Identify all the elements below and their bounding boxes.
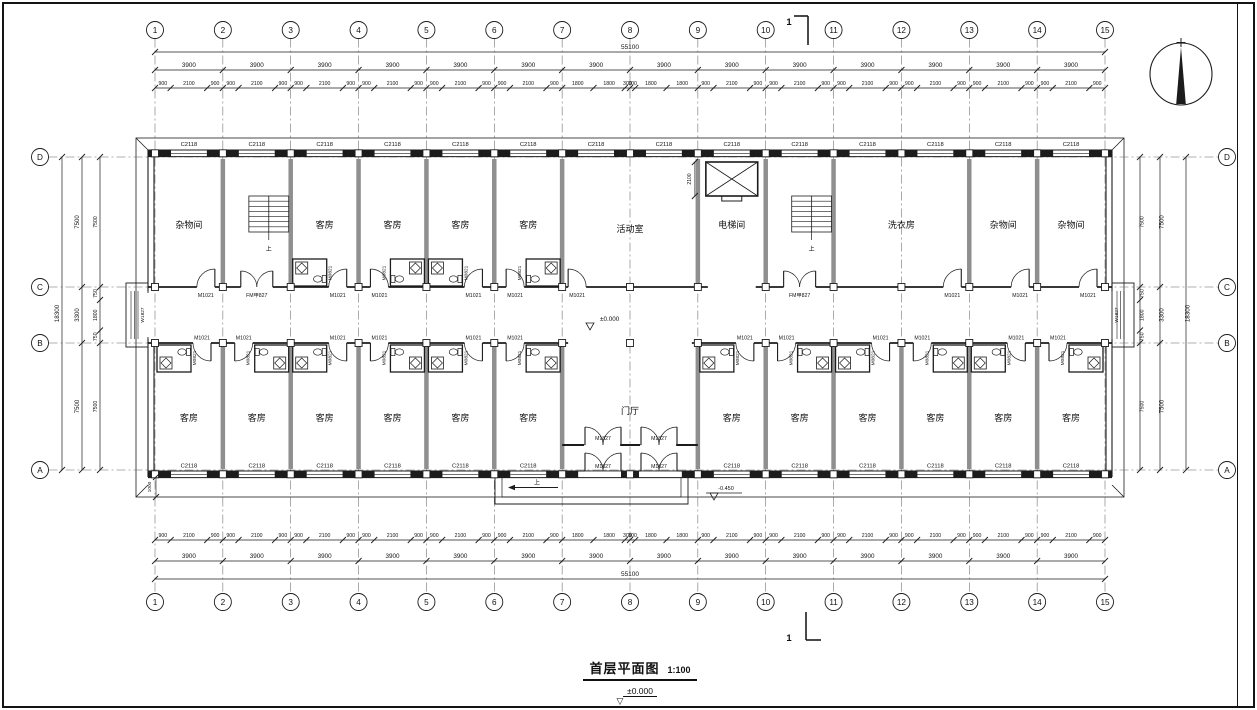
column bbox=[898, 284, 905, 291]
column bbox=[355, 340, 362, 347]
toilet-tank bbox=[798, 349, 802, 356]
dim-text: 3900 bbox=[793, 553, 808, 560]
column bbox=[559, 150, 566, 157]
dim-text: 900 bbox=[1025, 533, 1034, 539]
window-tag: C2118 bbox=[859, 464, 876, 470]
grid-bubble-label: A bbox=[37, 466, 43, 475]
toilet-icon bbox=[314, 276, 322, 282]
window-tag: C2118 bbox=[723, 464, 740, 470]
room-label: 客房 bbox=[383, 219, 401, 230]
toilet-tank bbox=[391, 349, 395, 356]
dim-text: 900 bbox=[769, 533, 778, 539]
column bbox=[762, 471, 769, 478]
dim-text: 7500 bbox=[93, 216, 99, 228]
dim-text: 3300 bbox=[1160, 308, 1166, 322]
room-door-tag: M1021 bbox=[198, 293, 214, 299]
column bbox=[287, 284, 294, 291]
room-door-tag: M1021 bbox=[194, 336, 210, 342]
grid-bubble-label: B bbox=[37, 339, 43, 348]
column bbox=[1101, 150, 1108, 157]
dim-text: 900 bbox=[482, 81, 491, 87]
shower-icon bbox=[432, 358, 442, 368]
shower-tray bbox=[431, 262, 443, 274]
dim-text: 900 bbox=[294, 81, 303, 87]
room-label: 客房 bbox=[858, 412, 876, 423]
drawing-scale: 1:100 bbox=[667, 665, 690, 675]
dim-text: 750 bbox=[93, 289, 99, 298]
shower-tray bbox=[409, 357, 421, 369]
room-label: 杂物间 bbox=[175, 219, 202, 230]
room-label: 客房 bbox=[519, 219, 537, 230]
end-window-tag: W1827 bbox=[140, 307, 146, 323]
shower-tray bbox=[296, 262, 308, 274]
bath-door-tag: M0821 bbox=[517, 350, 523, 365]
window-tag: C2118 bbox=[927, 464, 944, 470]
dim-text: 3900 bbox=[182, 62, 197, 69]
wall-opening bbox=[506, 284, 524, 289]
room-door-tag: M1021 bbox=[330, 293, 346, 299]
bathroom bbox=[836, 345, 870, 372]
bath-door-tag: M0821 bbox=[246, 350, 252, 365]
room-door-tag: M1021 bbox=[371, 293, 387, 299]
dim-text: 2100 bbox=[862, 81, 874, 87]
dim-text: 2100 bbox=[997, 81, 1009, 87]
north-needle bbox=[1176, 47, 1186, 104]
column bbox=[966, 150, 973, 157]
dim-text: 900 bbox=[821, 81, 830, 87]
level-triangle bbox=[586, 323, 594, 330]
column bbox=[626, 340, 633, 347]
dim-text: 2100 bbox=[183, 533, 195, 539]
column bbox=[1101, 340, 1108, 347]
wall-opening bbox=[464, 284, 482, 289]
column bbox=[287, 471, 294, 478]
dim-text: 3900 bbox=[996, 62, 1011, 69]
room-label: 客房 bbox=[451, 219, 469, 230]
column bbox=[491, 471, 498, 478]
overhang-corner bbox=[136, 138, 148, 150]
column bbox=[559, 340, 566, 347]
room-label: 客房 bbox=[994, 412, 1012, 423]
grid-bubble-label: D bbox=[37, 153, 43, 162]
bathroom bbox=[390, 259, 424, 286]
column bbox=[1034, 150, 1041, 157]
dim-text: 1800 bbox=[676, 81, 688, 87]
shower-icon bbox=[410, 358, 420, 368]
dim-text: 900 bbox=[159, 81, 168, 87]
bath-door-tag: M0821 bbox=[381, 350, 387, 365]
column bbox=[626, 284, 633, 291]
column bbox=[287, 150, 294, 157]
column bbox=[152, 284, 159, 291]
dim-text: 2100 bbox=[1065, 533, 1077, 539]
window-tag: C2118 bbox=[995, 464, 1012, 470]
dim-text: 900 bbox=[346, 533, 355, 539]
level-triangle bbox=[710, 493, 718, 500]
shower-tray bbox=[431, 357, 443, 369]
grid-bubble-label: B bbox=[1224, 339, 1230, 348]
room-door-tag: M1021 bbox=[1080, 293, 1096, 299]
dim-text: 3900 bbox=[996, 553, 1011, 560]
toilet-tank bbox=[458, 276, 462, 283]
room-door-tag: M1021 bbox=[873, 336, 889, 342]
dim-text: 3900 bbox=[589, 553, 604, 560]
window-tag: C2118 bbox=[181, 142, 198, 148]
column bbox=[559, 284, 566, 291]
bath-door-tag: M0821 bbox=[463, 350, 469, 365]
window-tag: C2118 bbox=[927, 142, 944, 148]
window-tag: C2118 bbox=[248, 464, 265, 470]
wall-opening bbox=[1104, 293, 1110, 337]
toilet-icon bbox=[992, 349, 1000, 355]
room-label: 洗衣房 bbox=[888, 219, 915, 230]
grid-bubble-label: A bbox=[1224, 466, 1230, 475]
grid-bubble-label: 6 bbox=[492, 598, 497, 607]
dim-text: 300 bbox=[628, 81, 637, 87]
shower-icon bbox=[975, 358, 985, 368]
window-tag: C2118 bbox=[859, 142, 876, 148]
room-door-tag: M1021 bbox=[371, 336, 387, 342]
room-door-tag: M1021 bbox=[944, 293, 960, 299]
dim-text: 900 bbox=[362, 533, 371, 539]
grid-bubble-label: 14 bbox=[1033, 26, 1043, 35]
window-tag: C2118 bbox=[995, 142, 1012, 148]
grid-bubble-label: 2 bbox=[221, 598, 226, 607]
grid-bubble-label: 13 bbox=[965, 26, 975, 35]
dim-text: 3900 bbox=[860, 62, 875, 69]
bathroom bbox=[157, 345, 191, 372]
dim-text: 7500 bbox=[1140, 401, 1146, 413]
column bbox=[830, 471, 837, 478]
wall-opening bbox=[641, 471, 677, 476]
shower-icon bbox=[1089, 358, 1099, 368]
shower-icon bbox=[953, 358, 963, 368]
wall-opening bbox=[146, 293, 152, 337]
column bbox=[1034, 340, 1041, 347]
column bbox=[898, 340, 905, 347]
dim-text: 1000 bbox=[147, 481, 153, 492]
dim-text: 2100 bbox=[387, 81, 399, 87]
toilet-icon bbox=[449, 349, 457, 355]
dim-text: 55100 bbox=[621, 571, 639, 578]
dim-text: 900 bbox=[821, 533, 830, 539]
grid-bubble-label: 9 bbox=[696, 598, 701, 607]
shower-icon bbox=[410, 263, 420, 273]
dim-text: 900 bbox=[1041, 533, 1050, 539]
bathroom bbox=[428, 259, 462, 286]
dim-text: 3900 bbox=[250, 553, 265, 560]
dim-text: 3900 bbox=[725, 62, 740, 69]
column bbox=[219, 471, 226, 478]
bathroom bbox=[1069, 345, 1103, 372]
bath-door-tag: M0821 bbox=[328, 350, 334, 365]
dim-text: 2100 bbox=[455, 81, 467, 87]
grid-bubble-label: 5 bbox=[424, 598, 429, 607]
entry-door-tag: M1827 bbox=[651, 464, 667, 470]
wall-opening bbox=[370, 284, 388, 289]
dim-text: 900 bbox=[498, 533, 507, 539]
grid-bubble-label: 3 bbox=[288, 26, 293, 35]
room-label: 客房 bbox=[316, 412, 334, 423]
entrance-level: -0.450 bbox=[718, 486, 734, 492]
bathroom bbox=[971, 345, 1005, 372]
bathroom bbox=[700, 345, 734, 372]
dim-text: 3900 bbox=[793, 62, 808, 69]
grid-bubble-label: 6 bbox=[492, 26, 497, 35]
door-swing bbox=[568, 269, 586, 287]
floor-plan-svg: C2118C2118C2118C2118C2118C2118C2118C2118… bbox=[0, 0, 1257, 710]
shower-tray bbox=[974, 357, 986, 369]
entry-door-tag: M1827 bbox=[595, 464, 611, 470]
dim-text: 900 bbox=[226, 81, 235, 87]
window-tag: C2118 bbox=[248, 142, 265, 148]
end-window-tag: W1827 bbox=[1114, 307, 1120, 323]
dim-text: 900 bbox=[889, 533, 898, 539]
column bbox=[423, 284, 430, 291]
door-swing bbox=[1011, 269, 1029, 287]
window-tag: C2118 bbox=[656, 142, 673, 148]
dim-text: 3900 bbox=[453, 553, 468, 560]
dim-text: 900 bbox=[159, 533, 168, 539]
level-marker-icon: ▽ bbox=[480, 698, 760, 704]
toilet-tank bbox=[527, 276, 531, 283]
dim-text: 3900 bbox=[860, 553, 875, 560]
dim-text: 3900 bbox=[928, 553, 943, 560]
window-tag: C2118 bbox=[452, 464, 469, 470]
column bbox=[355, 150, 362, 157]
room-label: 杂物间 bbox=[1058, 219, 1085, 230]
grid-bubble-label: 1 bbox=[153, 26, 158, 35]
grid-bubble-label: 11 bbox=[829, 598, 838, 607]
toilet-icon bbox=[395, 349, 403, 355]
toilet-icon bbox=[856, 349, 864, 355]
stair-up-label: 上 bbox=[809, 245, 815, 253]
room-label: 客房 bbox=[519, 412, 537, 423]
grid-bubble-label: 10 bbox=[761, 26, 771, 35]
section-mark-label: 1 bbox=[786, 633, 792, 644]
shower-icon bbox=[432, 263, 442, 273]
overhang-corner bbox=[1112, 485, 1124, 497]
window-tag: C2118 bbox=[723, 142, 740, 148]
shower-icon bbox=[297, 263, 307, 273]
bathroom bbox=[526, 345, 560, 372]
bath-door-tag: M0821 bbox=[517, 265, 523, 280]
shower-tray bbox=[952, 357, 964, 369]
wall-opening bbox=[708, 284, 756, 289]
dim-text: 900 bbox=[414, 81, 423, 87]
column bbox=[966, 340, 973, 347]
dim-text: 2100 bbox=[251, 533, 263, 539]
dim-text: 2100 bbox=[183, 81, 195, 87]
column bbox=[152, 340, 159, 347]
dim-text: 900 bbox=[226, 533, 235, 539]
corridor-level: ±0.000 bbox=[600, 316, 620, 323]
column bbox=[1034, 471, 1041, 478]
wall-opening bbox=[585, 471, 621, 476]
room-label: 电梯间 bbox=[718, 219, 745, 230]
datum-level: ±0.000 bbox=[623, 686, 657, 697]
dim-text: 7500 bbox=[1140, 216, 1146, 228]
bath-door-tag: M0821 bbox=[192, 350, 198, 365]
dim-text: 900 bbox=[430, 81, 439, 87]
bath-door-tag: M0821 bbox=[381, 265, 387, 280]
grid-bubble-label: 15 bbox=[1100, 26, 1110, 35]
shower-tray bbox=[160, 357, 172, 369]
toilet-tank bbox=[729, 349, 733, 356]
grid-bubble-label: 3 bbox=[288, 598, 293, 607]
dim-text: 2100 bbox=[687, 173, 693, 184]
column bbox=[694, 340, 701, 347]
entry-platform bbox=[495, 477, 688, 504]
column bbox=[1034, 284, 1041, 291]
dim-text: 1800 bbox=[572, 533, 584, 539]
dim-text: 1800 bbox=[645, 81, 657, 87]
column bbox=[830, 150, 837, 157]
shower-tray bbox=[296, 357, 308, 369]
dim-text: 3900 bbox=[657, 553, 672, 560]
column bbox=[762, 150, 769, 157]
wall-opening bbox=[329, 284, 347, 289]
dim-text: 3900 bbox=[1064, 553, 1079, 560]
room-door-tag: M1021 bbox=[1050, 336, 1066, 342]
dim-text: 900 bbox=[769, 81, 778, 87]
wall-opening bbox=[943, 284, 961, 289]
stair-up-label: 上 bbox=[266, 245, 272, 253]
toilet-icon bbox=[314, 349, 322, 355]
dim-text: 900 bbox=[279, 533, 288, 539]
grid-bubble-label: C bbox=[37, 283, 43, 292]
dim-text: 2100 bbox=[251, 81, 263, 87]
shower-tray bbox=[409, 262, 421, 274]
toilet-tank bbox=[322, 276, 326, 283]
column bbox=[762, 340, 769, 347]
room-door-tag: M1021 bbox=[737, 336, 753, 342]
dim-text: 1800 bbox=[93, 309, 99, 321]
dim-text: 3300 bbox=[75, 308, 81, 322]
dim-text: 2100 bbox=[794, 533, 806, 539]
room-label: 客房 bbox=[1062, 412, 1080, 423]
dim-text: 900 bbox=[973, 81, 982, 87]
column bbox=[1101, 471, 1108, 478]
column bbox=[491, 340, 498, 347]
toilet-icon bbox=[802, 349, 810, 355]
bathroom bbox=[428, 345, 462, 372]
grid-bubble-label: 4 bbox=[356, 598, 361, 607]
toilet-tank bbox=[865, 349, 869, 356]
shower-tray bbox=[274, 357, 286, 369]
toilet-icon bbox=[449, 276, 457, 282]
grid-bubble-label: 1 bbox=[153, 598, 158, 607]
shower-icon bbox=[818, 358, 828, 368]
window-tag: C2118 bbox=[316, 142, 333, 148]
dim-text: 900 bbox=[837, 533, 846, 539]
shower-icon bbox=[546, 263, 556, 273]
room-door-tag: M1021 bbox=[330, 336, 346, 342]
shower-icon bbox=[546, 358, 556, 368]
grid-bubble-label: 8 bbox=[628, 598, 633, 607]
dim-text: 900 bbox=[889, 81, 898, 87]
bathroom bbox=[798, 345, 832, 372]
toilet-icon bbox=[938, 349, 946, 355]
dim-text: 900 bbox=[1093, 81, 1102, 87]
dim-text: 900 bbox=[754, 81, 763, 87]
column bbox=[830, 340, 837, 347]
bathroom bbox=[293, 345, 327, 372]
dim-text: 900 bbox=[550, 81, 559, 87]
room-label: 门厅 bbox=[621, 405, 639, 416]
room-label: 客房 bbox=[383, 412, 401, 423]
shower-tray bbox=[703, 357, 715, 369]
dim-text: 2100 bbox=[455, 533, 467, 539]
dim-text: 1800 bbox=[603, 533, 615, 539]
toilet-tank bbox=[458, 349, 462, 356]
bath-door-tag: M0821 bbox=[735, 350, 741, 365]
column bbox=[1101, 284, 1108, 291]
dim-text: 900 bbox=[1041, 81, 1050, 87]
dim-text: 750 bbox=[1140, 289, 1146, 298]
dim-text: 900 bbox=[294, 533, 303, 539]
room-door-tag: M1021 bbox=[507, 336, 523, 342]
window-tag: C2118 bbox=[316, 464, 333, 470]
drawing-title: 首层平面图 bbox=[589, 661, 659, 676]
toilet-tank bbox=[255, 349, 259, 356]
grid-bubble-label: 2 bbox=[221, 26, 226, 35]
column bbox=[355, 284, 362, 291]
room-label: 杂物间 bbox=[990, 219, 1017, 230]
dim-text: 7500 bbox=[75, 215, 81, 229]
column bbox=[694, 150, 701, 157]
dim-text: 900 bbox=[1093, 533, 1102, 539]
column bbox=[423, 471, 430, 478]
grid-bubble-label: C bbox=[1224, 283, 1230, 292]
dim-text: 3900 bbox=[928, 62, 943, 69]
dim-text: 2100 bbox=[319, 533, 331, 539]
toilet-tank bbox=[934, 349, 938, 356]
grid-bubble-label: 7 bbox=[560, 598, 565, 607]
dim-text: 2100 bbox=[319, 81, 331, 87]
dim-text: 900 bbox=[905, 81, 914, 87]
title-block: 首层平面图1:100 ±0.000 ▽ bbox=[520, 658, 760, 704]
dim-text: 2100 bbox=[387, 533, 399, 539]
toilet-icon bbox=[531, 276, 539, 282]
room-label: 客房 bbox=[791, 412, 809, 423]
dim-text: 3900 bbox=[182, 553, 197, 560]
dim-text: 900 bbox=[973, 533, 982, 539]
dim-text: 900 bbox=[211, 81, 220, 87]
toilet-icon bbox=[531, 349, 539, 355]
dim-text: 2100 bbox=[726, 533, 738, 539]
toilet-icon bbox=[178, 349, 186, 355]
grid-bubble-label: 8 bbox=[628, 26, 633, 35]
dim-text: 900 bbox=[1025, 81, 1034, 87]
window-tag: C2118 bbox=[384, 142, 401, 148]
dim-text: 900 bbox=[905, 533, 914, 539]
shower-tray bbox=[817, 357, 829, 369]
dim-text: 2100 bbox=[862, 533, 874, 539]
dim-text: 3900 bbox=[589, 62, 604, 69]
dim-text: 900 bbox=[957, 533, 966, 539]
dim-text: 3900 bbox=[657, 62, 672, 69]
door-swing bbox=[197, 269, 215, 287]
column bbox=[219, 284, 226, 291]
grid-bubble-label: 9 bbox=[696, 26, 701, 35]
door-swing bbox=[1079, 269, 1097, 287]
bathroom bbox=[526, 259, 560, 286]
wall-opening bbox=[1079, 284, 1097, 289]
room-door-tag: M1021 bbox=[1012, 293, 1028, 299]
column bbox=[762, 284, 769, 291]
column bbox=[152, 471, 159, 478]
